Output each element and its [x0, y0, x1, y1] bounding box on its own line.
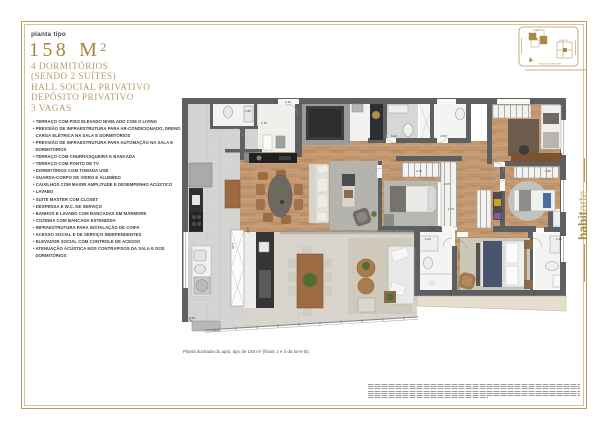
svg-text:1.00: 1.00 [425, 237, 431, 241]
svg-text:1.80: 1.80 [245, 109, 251, 113]
svg-text:TORRE B: TORRE B [558, 40, 568, 42]
svg-text:4.30: 4.30 [246, 227, 250, 233]
svg-text:3.12: 3.12 [457, 252, 461, 258]
svg-text:1.73: 1.73 [448, 207, 454, 211]
svg-text:2.35: 2.35 [440, 134, 446, 138]
svg-text:2.95: 2.95 [545, 169, 551, 173]
svg-text:0.81: 0.81 [430, 227, 436, 231]
svg-text:1.30: 1.30 [556, 237, 562, 241]
svg-text:2.05: 2.05 [444, 182, 450, 186]
svg-text:2.30: 2.30 [231, 243, 235, 249]
svg-text:1.79: 1.79 [261, 121, 267, 125]
svg-text:2.64: 2.64 [532, 290, 536, 296]
svg-text:RUA DOUTOR FOMM: RUA DOUTOR FOMM [539, 63, 561, 66]
svg-text:TORRE A: TORRE A [532, 29, 542, 32]
svg-text:2.10: 2.10 [416, 169, 422, 173]
svg-text:0.65: 0.65 [189, 316, 195, 320]
svg-text:2.84: 2.84 [449, 290, 453, 296]
svg-text:5.42: 5.42 [391, 134, 397, 138]
svg-text:1.45: 1.45 [285, 100, 291, 104]
